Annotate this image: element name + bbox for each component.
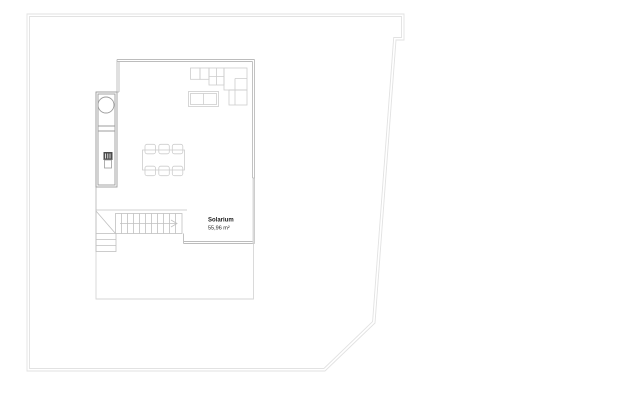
lower-terrace-outline [96, 244, 254, 300]
stair-winder-treads [96, 240, 116, 246]
plot-boundary-inner [30, 17, 402, 369]
dining-chair [172, 144, 183, 154]
dining-chair [145, 144, 156, 154]
sofa-corner-module [224, 68, 247, 90]
sink-basin-icon [98, 97, 114, 113]
sofa-module [229, 90, 247, 105]
counter-inner [98, 94, 115, 185]
staircase [96, 210, 187, 252]
wall-left-upper [96, 60, 119, 93]
sofa-module [191, 68, 201, 79]
wall-right-upper [253, 60, 255, 179]
wall-top [117, 60, 255, 62]
room-label: Solarium 55,96 m² [208, 218, 234, 232]
room-area-label: 55,96 m² [208, 226, 230, 232]
room-name-label: Solarium [208, 218, 234, 224]
sofa-block-dividers [209, 68, 224, 85]
plot-boundary [27, 14, 404, 371]
dining-chair [172, 166, 183, 176]
dining-chair [145, 166, 156, 176]
lower-terrace [96, 244, 254, 300]
sofa-module [200, 68, 209, 79]
floor-plan-canvas: Solarium 55,96 m² [0, 0, 620, 406]
stair-direction-arrow-icon [120, 220, 177, 227]
kitchen-counter [96, 92, 117, 187]
coffee-table [189, 92, 219, 107]
stair-winder-diagonal [96, 211, 116, 234]
bbq-fixture-icon [104, 152, 113, 168]
parapet-right [253, 178, 255, 244]
wall-bottom [184, 178, 255, 244]
solarium-floor-plan: Solarium 55,96 m² [0, 0, 620, 406]
fixture-base [105, 160, 112, 168]
dining-set [143, 144, 185, 175]
stair-winder-box [96, 234, 116, 252]
dining-table [143, 150, 185, 170]
dining-chair [159, 166, 170, 176]
counter-sink-box [98, 126, 115, 131]
dining-chair [159, 144, 170, 154]
sofa-corner-dividers [235, 79, 247, 91]
plot-boundary-outer [27, 14, 404, 371]
